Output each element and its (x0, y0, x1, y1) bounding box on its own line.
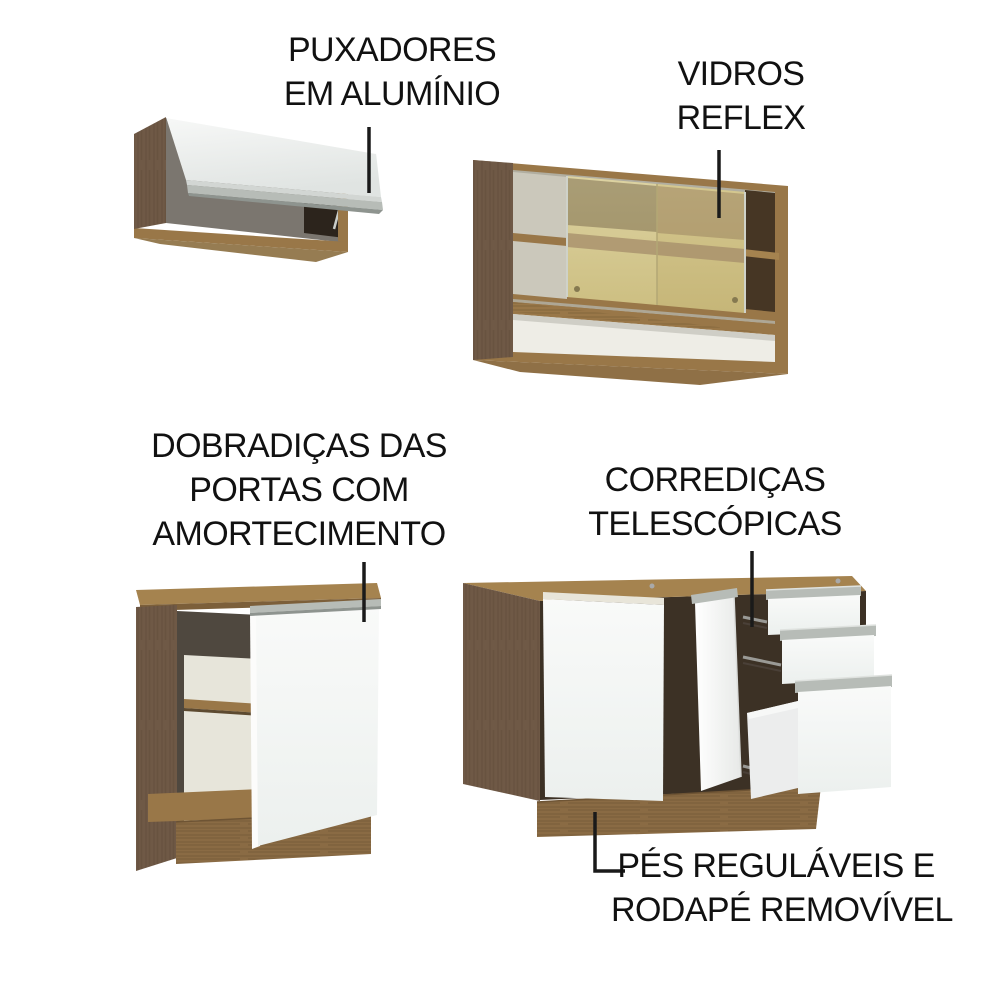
cam-fitting (650, 584, 655, 589)
label-line: AMORTECIMENTO (124, 512, 474, 556)
base-cabinet-open-door (136, 583, 381, 871)
cabinet4-open-door (695, 596, 741, 791)
label-line: VIDROS (591, 52, 891, 96)
label-line: PÉS REGULÁVEIS E (611, 844, 941, 888)
label-line: CORREDIÇAS (565, 458, 865, 502)
callout-label-slides: CORREDIÇAS TELESCÓPICAS (565, 458, 865, 546)
label-line: TELESCÓPICAS (565, 502, 865, 546)
base-cabinet-drawers (463, 576, 892, 837)
product-feature-diagram: PUXADORES EM ALUMÍNIO VIDROS REFLEX DOBR… (0, 0, 1000, 1000)
label-line: RODAPÉ REMOVÍVEL (611, 888, 941, 932)
label-line: PORTAS COM (124, 468, 474, 512)
label-line: PUXADORES (232, 28, 552, 72)
label-line: DOBRADIÇAS DAS (124, 424, 474, 468)
drawer-middle (780, 625, 876, 684)
cam-fitting (836, 579, 841, 584)
glass-finger-hole (732, 297, 738, 303)
wall-cabinet-flip-door (134, 117, 383, 262)
glass-finger-hole (574, 286, 580, 292)
callout-label-hinges: DOBRADIÇAS DAS PORTAS COM AMORTECIMENTO (124, 424, 474, 556)
cabinet3-door (256, 606, 379, 846)
wall-cabinet-glass (473, 160, 788, 385)
label-line: EM ALUMÍNIO (232, 72, 552, 116)
label-line: REFLEX (591, 96, 891, 140)
callout-label-glass: VIDROS REFLEX (591, 52, 891, 140)
cabinet4-closed-door (543, 599, 664, 801)
callout-label-handles: PUXADORES EM ALUMÍNIO (232, 28, 552, 116)
callout-label-feet: PÉS REGULÁVEIS E RODAPÉ REMOVÍVEL (611, 844, 941, 932)
